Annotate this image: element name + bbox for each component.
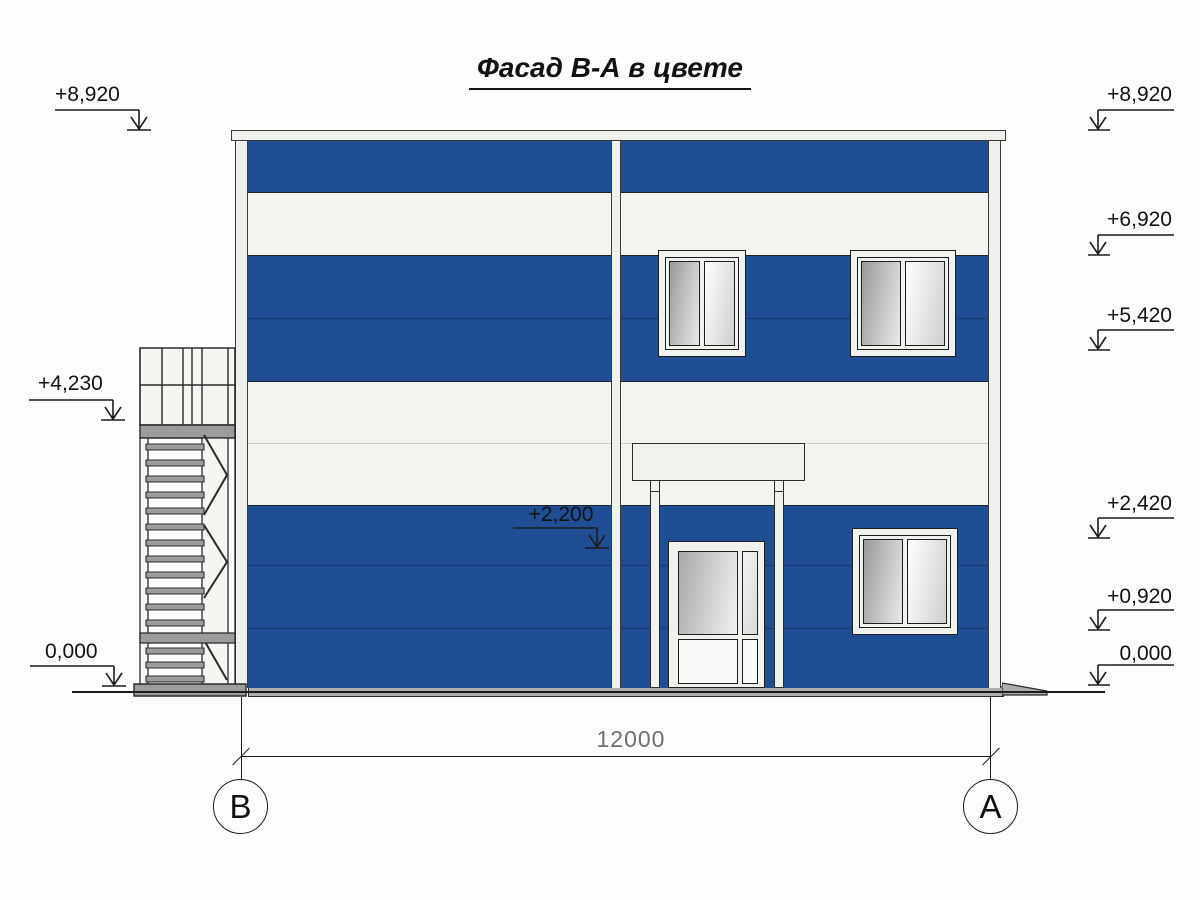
elevation-arrow-icon xyxy=(513,527,613,553)
window-frame xyxy=(665,257,739,350)
window-frame xyxy=(857,257,949,350)
elevation-arrow-icon xyxy=(55,109,155,135)
dimension-value: 12000 xyxy=(556,726,706,753)
axis-letter: А xyxy=(979,788,1001,826)
plinth-ramp xyxy=(1002,682,1050,697)
elevation-label: +8,920 xyxy=(55,83,120,107)
elevation-label: +8,920 xyxy=(1102,83,1172,107)
window-upper-right xyxy=(850,250,956,357)
window-lower-right xyxy=(852,528,958,635)
elevation-label: +0,920 xyxy=(1102,585,1172,609)
ground-line xyxy=(72,691,1105,693)
post-joint xyxy=(774,491,784,492)
elevation-label: +4,230 xyxy=(38,372,103,396)
elevation-arrow-icon xyxy=(1088,609,1176,635)
entrance-canopy xyxy=(632,443,805,481)
extension-line-A xyxy=(990,697,991,779)
elevation-arrow-icon xyxy=(1088,109,1176,135)
facade-drawing: Фасад В-А в цвете xyxy=(0,0,1200,900)
elevation-label: +6,920 xyxy=(1102,208,1172,232)
axis-bubble-B: В xyxy=(213,779,268,834)
elevation-arrow-icon xyxy=(1088,234,1176,260)
drawing-title: Фасад В-А в цвете xyxy=(469,52,751,90)
window-pane xyxy=(907,539,947,624)
entrance-door xyxy=(668,541,765,688)
elevation-label: +5,420 xyxy=(1102,304,1172,328)
center-pilaster xyxy=(611,141,621,688)
elevation-label: 0,000 xyxy=(1102,642,1172,666)
window-pane xyxy=(861,261,901,346)
elevation-label: +2,420 xyxy=(1102,492,1172,516)
window-pane xyxy=(669,261,700,346)
corner-pilaster-right xyxy=(988,141,1001,688)
elevation-arrow-icon xyxy=(30,665,130,691)
external-stair xyxy=(130,340,250,702)
door-glazing xyxy=(678,551,738,635)
canopy-post-left xyxy=(650,480,660,688)
roof-coping xyxy=(231,130,1006,141)
window-frame xyxy=(859,535,951,628)
dimension-line xyxy=(241,756,991,757)
axis-bubble-A: А xyxy=(963,779,1018,834)
canopy-post-right xyxy=(774,480,784,688)
axis-letter: В xyxy=(229,788,251,826)
post-joint xyxy=(650,491,660,492)
door-lower-panel xyxy=(678,639,738,684)
elevation-arrow-icon xyxy=(29,399,129,425)
facade-wall xyxy=(235,141,1001,688)
window-pane xyxy=(863,539,903,624)
sidelight-glazing xyxy=(742,551,758,635)
elevation-arrow-icon xyxy=(1088,329,1176,355)
elevation-label: +2,200 xyxy=(525,503,597,527)
window-pane xyxy=(905,261,945,346)
elevation-arrow-icon xyxy=(1088,517,1176,543)
window-pane xyxy=(704,261,735,346)
elevation-arrow-icon xyxy=(1088,664,1176,690)
elevation-label: 0,000 xyxy=(45,640,98,664)
sidelight-panel xyxy=(742,639,758,684)
extension-line-B xyxy=(241,697,242,779)
window-upper-left xyxy=(658,250,746,357)
